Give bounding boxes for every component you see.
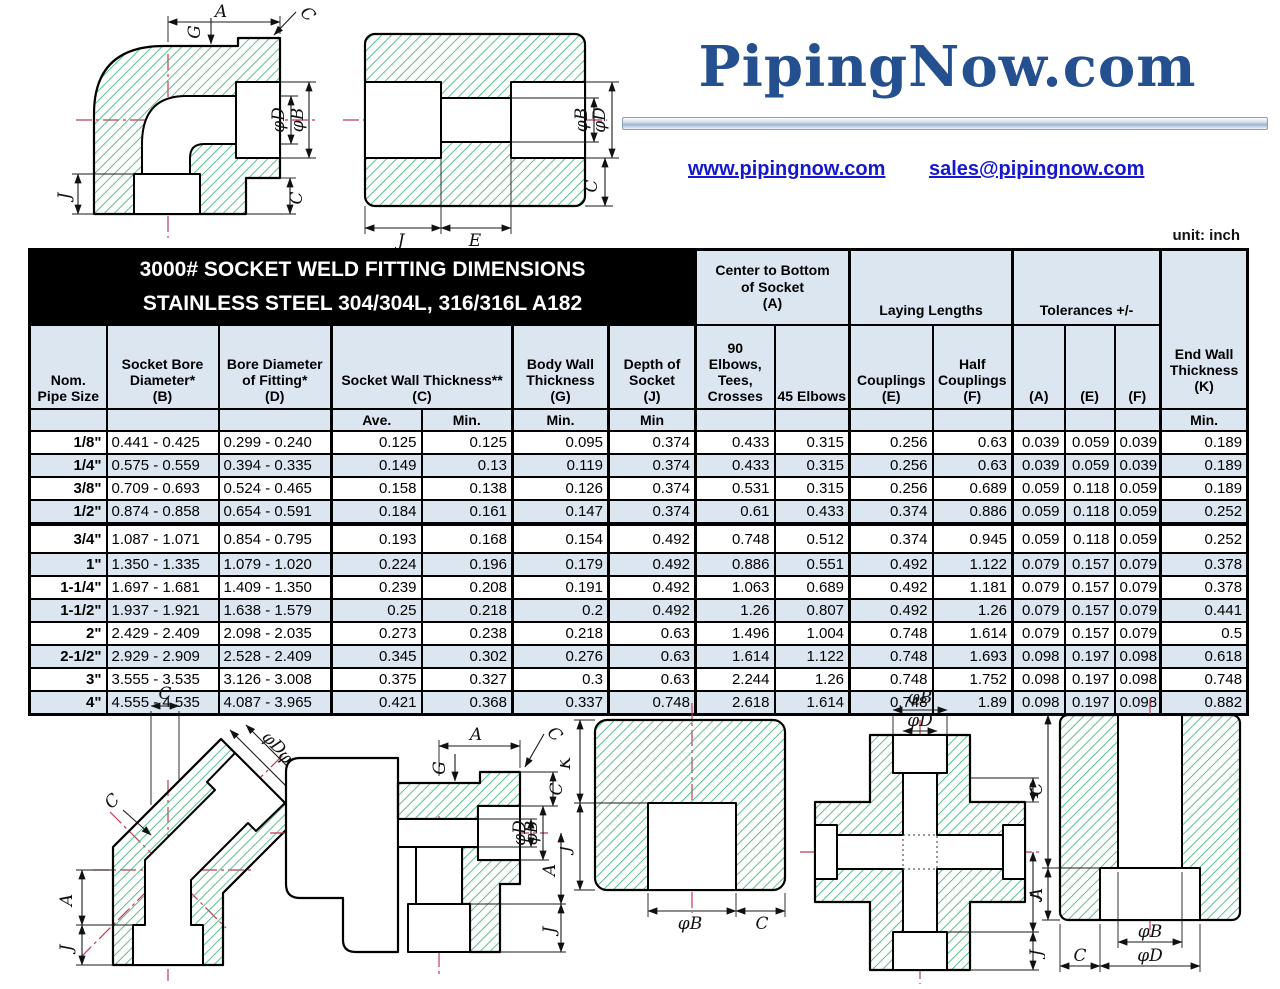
dimension-cell: 0.433: [696, 454, 775, 477]
dimension-cell: 0.441 - 0.425: [107, 431, 219, 454]
dimension-cell: 2.244: [696, 668, 775, 691]
dimension-cell: 0.079: [1115, 553, 1161, 576]
dimension-cell: 0.886: [933, 500, 1013, 524]
dimension-cell: 0.157: [1065, 576, 1115, 599]
dimension-cell: 2.929 - 2.909: [107, 645, 219, 668]
table-row: 1/4"0.575 - 0.5590.394 - 0.3350.1490.130…: [30, 454, 1248, 477]
column-header-end-wall: End Wall Thickness (K): [1161, 250, 1248, 410]
dimension-cell: 0.218: [422, 599, 513, 622]
dimension-cell: 0.886: [696, 553, 775, 576]
dimension-cell: 0.168: [422, 524, 513, 553]
dim-label-c2: C: [101, 790, 124, 813]
dimension-cell: 0.098: [1115, 645, 1161, 668]
dimension-cell: 0.118: [1065, 477, 1115, 500]
subheader-cell: Min.: [1161, 409, 1248, 431]
dimension-cell: 0.059: [1115, 477, 1161, 500]
subheader-cell: [933, 409, 1013, 431]
dimension-cell: 0.378: [1161, 553, 1248, 576]
column-header-depth-socket: Depth of Socket (J): [609, 325, 696, 409]
pipe-size-cell: 1/4": [30, 454, 107, 477]
dimension-cell: 0.374: [850, 500, 933, 524]
cross-diagram: φB φD C A J: [795, 690, 1045, 988]
email-link[interactable]: sales@pipingnow.com: [929, 158, 1144, 180]
dimension-cell: 0.273: [332, 622, 422, 645]
dimension-cell: 0.189: [1161, 454, 1248, 477]
dimension-cell: 0.147: [513, 500, 609, 524]
dimension-cell: 0.098: [1013, 668, 1065, 691]
dimension-cell: 1.087 - 1.071: [107, 524, 219, 553]
spec-sheet-page: PipingNow.com www.pipingnow.com sales@pi…: [0, 0, 1280, 989]
dimension-cell: 2.528 - 2.409: [219, 645, 332, 668]
dimension-cell: 0.374: [609, 477, 696, 500]
dimension-cell: 0.63: [933, 454, 1013, 477]
dimension-cell: 1.26: [696, 599, 775, 622]
dimension-cell: 0.157: [1065, 553, 1115, 576]
dimension-cell: 1.614: [933, 622, 1013, 645]
dimension-cell: 0.118: [1065, 500, 1115, 524]
dimension-cell: 0.157: [1065, 622, 1115, 645]
subheader-cell: [1065, 409, 1115, 431]
dimensions-table: 3000# SOCKET WELD FITTING DIMENSIONS STA…: [28, 248, 1249, 716]
dim-label-a: A: [57, 894, 77, 908]
pipe-size-cell: 3/8": [30, 477, 107, 500]
dim-label-c: C: [1073, 946, 1086, 966]
subheader-cell: [107, 409, 219, 431]
dimension-cell: 0.256: [850, 431, 933, 454]
dim-label-c: C: [582, 179, 602, 192]
dimension-cell: 1.26: [775, 668, 850, 691]
dimension-cell: 0.095: [513, 431, 609, 454]
contact-links: www.pipingnow.com sales@pipingnow.com: [688, 158, 1182, 181]
dimension-cell: 0.492: [850, 553, 933, 576]
column-header-45-elbows: 45 Elbows: [775, 325, 850, 409]
dimension-cell: 1.079 - 1.020: [219, 553, 332, 576]
tee-diagram: A G C C φD φB A J: [248, 688, 568, 988]
dimension-cell: 0.709 - 0.693: [107, 477, 219, 500]
dimension-cell: 0.059: [1115, 524, 1161, 553]
dim-label-c2: C: [287, 191, 307, 204]
dim-label-a: A: [213, 2, 227, 22]
dimension-cell: 0.039: [1115, 431, 1161, 454]
dimension-cell: 0.079: [1013, 622, 1065, 645]
dimension-cell: 0.252: [1161, 500, 1248, 524]
dimension-cell: 0.098: [1115, 668, 1161, 691]
column-header-bore-fitting: Bore Diameter of Fitting* (D): [219, 325, 332, 409]
dimension-cell: 2.429 - 2.409: [107, 622, 219, 645]
dimension-cell: 1.350 - 1.335: [107, 553, 219, 576]
dimension-cell: 0.039: [1115, 454, 1161, 477]
dimension-cell: 0.531: [696, 477, 775, 500]
column-header-body-wall: Body Wall Thickness (G): [513, 325, 609, 409]
dimension-cell: 0.154: [513, 524, 609, 553]
table-row: 1/8"0.441 - 0.4250.299 - 0.2400.1250.125…: [30, 431, 1248, 454]
group-header-center-to-bottom: Center to Bottom of Socket (A): [696, 250, 850, 326]
unit-label: unit: inch: [1040, 227, 1240, 244]
dimension-cell: 0.374: [609, 454, 696, 477]
dim-label-j: J: [55, 191, 75, 202]
dimension-cell: 0.149: [332, 454, 422, 477]
dim-label-k: K: [560, 755, 575, 770]
dimension-cell: 0.125: [332, 431, 422, 454]
dimension-cell: 0.654 - 0.591: [219, 500, 332, 524]
table-row: 3/8"0.709 - 0.6930.524 - 0.4650.1580.138…: [30, 477, 1248, 500]
dimension-cell: 0.378: [1161, 576, 1248, 599]
dimension-cell: 1.26: [933, 599, 1013, 622]
dimension-cell: 0.748: [850, 645, 933, 668]
dimension-cell: 0.61: [696, 500, 775, 524]
dimension-cell: 0.394 - 0.335: [219, 454, 332, 477]
coupling-diagram: J E φB φD C: [335, 2, 635, 248]
dimension-cell: 1.181: [933, 576, 1013, 599]
subheader-cell: [1013, 409, 1065, 431]
column-header-socket-wall: Socket Wall Thickness** (C): [332, 325, 513, 409]
table-row: 3/4"1.087 - 1.0710.854 - 0.7950.1930.168…: [30, 524, 1248, 553]
dimension-cell: 0.125: [422, 431, 513, 454]
dimension-cell: 0.302: [422, 645, 513, 668]
dimension-cell: 0.161: [422, 500, 513, 524]
website-link[interactable]: www.pipingnow.com: [688, 158, 885, 180]
dimension-cell: 1.697 - 1.681: [107, 576, 219, 599]
cap-diagram: K J φB C: [560, 695, 820, 935]
dimension-cell: 0.252: [1161, 524, 1248, 553]
dimension-cell: 0.256: [850, 477, 933, 500]
dimension-cell: 0.039: [1013, 431, 1065, 454]
dim-label-phid: φD: [1137, 946, 1163, 966]
dimension-cell: 0.208: [422, 576, 513, 599]
dimension-cell: 0.197: [1065, 668, 1115, 691]
dimension-cell: 0.512: [775, 524, 850, 553]
dim-label-g: G: [185, 25, 205, 39]
pipe-size-cell: 1-1/4": [30, 576, 107, 599]
dimension-cell: 1.004: [775, 622, 850, 645]
dimension-cell: 0.079: [1013, 553, 1065, 576]
dimension-cell: 0.492: [609, 576, 696, 599]
dim-label-a: A: [468, 725, 482, 745]
pipe-size-cell: 1": [30, 553, 107, 576]
dimension-cell: 0.492: [850, 599, 933, 622]
dimension-cell: 1.122: [775, 645, 850, 668]
dimension-cell: 0.345: [332, 645, 422, 668]
dimension-cell: 0.433: [696, 431, 775, 454]
dimension-cell: 0.059: [1013, 477, 1065, 500]
subheader-cell: [850, 409, 933, 431]
pipe-size-cell: 2": [30, 622, 107, 645]
dimension-cell: 1.614: [696, 645, 775, 668]
dimension-cell: 1.638 - 1.579: [219, 599, 332, 622]
dimension-cell: 0.119: [513, 454, 609, 477]
dimension-cell: 0.098: [1013, 645, 1065, 668]
dimension-cell: 0.748: [696, 524, 775, 553]
dimension-cell: 0.197: [1065, 645, 1115, 668]
dim-label-g: G: [430, 761, 450, 775]
subheader-cell: [1115, 409, 1161, 431]
dimension-cell: 0.218: [513, 622, 609, 645]
dimension-cell: 1.122: [933, 553, 1013, 576]
dimension-cell: 0.315: [775, 477, 850, 500]
dimension-cell: 0.492: [609, 524, 696, 553]
dimension-cell: 1.937 - 1.921: [107, 599, 219, 622]
column-header-tol-e: (E): [1065, 325, 1115, 409]
logo-divider-bar: [622, 117, 1268, 130]
dim-label-c: C: [158, 685, 171, 704]
dim-label-phib: φB: [288, 108, 308, 132]
table-row: 2"2.429 - 2.4092.098 - 2.0350.2730.2380.…: [30, 622, 1248, 645]
column-header-half-couplings: Half Couplings (F): [933, 325, 1013, 409]
dim-label-phib: φB: [1138, 922, 1162, 942]
dim-label-phib: φB: [678, 914, 702, 934]
dim-label-phib: φB: [572, 108, 592, 132]
subheader-cell: [30, 409, 107, 431]
dimension-cell: 0.059: [1013, 524, 1065, 553]
subheader-cell: Min: [609, 409, 696, 431]
dimension-cell: 1.693: [933, 645, 1013, 668]
dimension-cell: 0.276: [513, 645, 609, 668]
dimension-cell: 0.441: [1161, 599, 1248, 622]
dim-label-c: C: [296, 3, 319, 26]
dimension-cell: 0.079: [1115, 622, 1161, 645]
dimension-cell: 0.079: [1115, 599, 1161, 622]
dimension-cell: 0.492: [609, 553, 696, 576]
dimension-cell: 0.433: [775, 500, 850, 524]
dimension-cell: 0.492: [850, 576, 933, 599]
dimension-cell: 0.059: [1115, 500, 1161, 524]
dim-label-phid: φD: [590, 107, 610, 133]
dimension-cell: 0.315: [775, 454, 850, 477]
dimension-cell: 0.748: [850, 622, 933, 645]
dim-label-j: J: [540, 925, 560, 936]
table-row: 1/2"0.874 - 0.8580.654 - 0.5910.1840.161…: [30, 500, 1248, 524]
subheader-cell: Min.: [513, 409, 609, 431]
subheader-cell: [219, 409, 332, 431]
pipe-size-cell: 1-1/2": [30, 599, 107, 622]
dimension-cell: 0.126: [513, 477, 609, 500]
dim-label-j: J: [395, 231, 406, 248]
dimension-cell: 0.315: [775, 431, 850, 454]
dimension-cell: 0.059: [1013, 500, 1065, 524]
subheader-cell: [775, 409, 850, 431]
dimension-cell: 0.193: [332, 524, 422, 553]
column-header-couplings: Couplings (E): [850, 325, 933, 409]
dimension-cell: 0.138: [422, 477, 513, 500]
dimension-cell: 0.854 - 0.795: [219, 524, 332, 553]
dimension-cell: 0.039: [1013, 454, 1065, 477]
dimension-cell: 0.191: [513, 576, 609, 599]
dimension-cell: 0.189: [1161, 431, 1248, 454]
table-title: 3000# SOCKET WELD FITTING DIMENSIONS STA…: [30, 250, 696, 326]
pipingnow-logo: PipingNow.com: [625, 34, 1270, 100]
elbow-90-diagram: A C G φD φB J C: [28, 2, 328, 244]
subheader-cell: [696, 409, 775, 431]
pipe-size-cell: 3/4": [30, 524, 107, 553]
dimension-cell: 0.179: [513, 553, 609, 576]
dimension-cell: 0.25: [332, 599, 422, 622]
table-row: 1"1.350 - 1.3351.079 - 1.0200.2240.1960.…: [30, 553, 1248, 576]
dimension-cell: 0.575 - 0.559: [107, 454, 219, 477]
dim-label-phib: φB: [522, 821, 542, 845]
dimension-cell: 0.189: [1161, 477, 1248, 500]
dim-label-phib: φB: [908, 690, 932, 708]
dimensions-table-body: 1/8"0.441 - 0.4250.299 - 0.2400.1250.125…: [30, 431, 1248, 715]
dimension-cell: 0.059: [1065, 431, 1115, 454]
dimension-cell: 0.256: [850, 454, 933, 477]
dimension-cell: 0.945: [933, 524, 1013, 553]
dim-label-c: C: [755, 914, 768, 934]
dimension-cell: 1.063: [696, 576, 775, 599]
dimension-cell: 0.374: [609, 431, 696, 454]
pipe-size-cell: 2-1/2": [30, 645, 107, 668]
table-row: 2-1/2"2.929 - 2.9092.528 - 2.4090.3450.3…: [30, 645, 1248, 668]
dimension-cell: 0.63: [609, 622, 696, 645]
column-header-90-elbows: 90 Elbows, Tees, Crosses: [696, 325, 775, 409]
subheader-cell: Ave.: [332, 409, 422, 431]
dimension-cell: 0.224: [332, 553, 422, 576]
dimension-cell: 0.158: [332, 477, 422, 500]
dim-label-f: F: [1030, 785, 1043, 799]
dim-label-a2: A: [540, 864, 560, 878]
dimension-cell: 0.689: [933, 477, 1013, 500]
dimension-cell: 0.079: [1013, 599, 1065, 622]
dimension-cell: 0.059: [1065, 454, 1115, 477]
dimension-cell: 1.496: [696, 622, 775, 645]
dim-label-j: J: [1030, 891, 1043, 902]
dim-label-j: J: [560, 844, 575, 855]
dimension-cell: 0.184: [332, 500, 422, 524]
dim-label-e: E: [468, 231, 482, 248]
dimension-cell: 0.748: [850, 668, 933, 691]
dimension-cell: 0.079: [1115, 576, 1161, 599]
column-header-socket-bore: Socket Bore Diameter* (B): [107, 325, 219, 409]
dimension-cell: 0.196: [422, 553, 513, 576]
half-coupling-diagram: F J φB φD C: [1030, 690, 1260, 988]
dimension-cell: 0.748: [1161, 668, 1248, 691]
pipe-size-cell: 1/2": [30, 500, 107, 524]
dimension-cell: 0.618: [1161, 645, 1248, 668]
dimension-cell: 0.551: [775, 553, 850, 576]
group-header-tolerances: Tolerances +/-: [1013, 250, 1161, 326]
dimension-cell: 0.807: [775, 599, 850, 622]
dimension-cell: 0.2: [513, 599, 609, 622]
dim-label-j: J: [57, 943, 77, 954]
column-header-nom: Nom. Pipe Size: [30, 325, 107, 409]
dimension-cell: 0.492: [609, 599, 696, 622]
dimension-cell: 0.63: [609, 668, 696, 691]
dimension-cell: 0.874 - 0.858: [107, 500, 219, 524]
dimension-cell: 0.118: [1065, 524, 1115, 553]
column-header-tol-f: (F): [1115, 325, 1161, 409]
dimension-cell: 0.238: [422, 622, 513, 645]
dimension-cell: 0.13: [422, 454, 513, 477]
dimension-cell: 0.5: [1161, 622, 1248, 645]
dimension-cell: 0.239: [332, 576, 422, 599]
pipe-size-cell: 1/8": [30, 431, 107, 454]
dim-label-phid: φD: [907, 711, 933, 731]
dimension-cell: 0.374: [609, 500, 696, 524]
group-header-laying-lengths: Laying Lengths: [850, 250, 1013, 326]
table-row: 1-1/2"1.937 - 1.9211.638 - 1.5790.250.21…: [30, 599, 1248, 622]
table-row: 1-1/4"1.697 - 1.6811.409 - 1.3500.2390.2…: [30, 576, 1248, 599]
subheader-cell: Min.: [422, 409, 513, 431]
dimension-cell: 0.689: [775, 576, 850, 599]
dimension-cell: 2.098 - 2.035: [219, 622, 332, 645]
dimension-cell: 1.752: [933, 668, 1013, 691]
dimension-cell: 0.374: [850, 524, 933, 553]
column-header-tol-a: (A): [1013, 325, 1065, 409]
dimension-cell: 0.524 - 0.465: [219, 477, 332, 500]
dimension-cell: 1.409 - 1.350: [219, 576, 332, 599]
dim-label-phid: φD: [269, 107, 289, 133]
dimension-cell: 0.079: [1013, 576, 1065, 599]
dimension-cell: 0.299 - 0.240: [219, 431, 332, 454]
dimension-cell: 0.63: [609, 645, 696, 668]
dimension-cell: 0.63: [933, 431, 1013, 454]
dimension-cell: 0.157: [1065, 599, 1115, 622]
